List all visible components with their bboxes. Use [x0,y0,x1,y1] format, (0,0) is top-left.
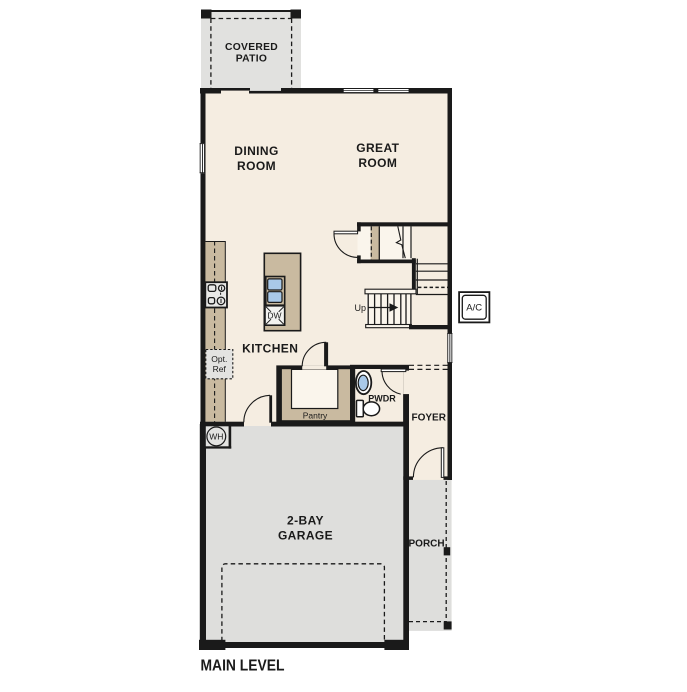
svg-text:FOYER: FOYER [412,413,447,424]
svg-text:COVERED: COVERED [225,42,278,53]
svg-text:PWDR: PWDR [368,393,396,403]
svg-text:Opt.: Opt. [211,354,227,364]
svg-text:ROOM: ROOM [358,156,397,170]
svg-text:PORCH: PORCH [409,539,445,550]
svg-text:Pantry: Pantry [303,410,328,420]
svg-text:Ref: Ref [213,364,227,374]
svg-text:GREAT: GREAT [356,141,399,155]
svg-text:DINING: DINING [234,144,278,158]
svg-text:2-BAY: 2-BAY [287,514,324,528]
svg-text:MAIN LEVEL: MAIN LEVEL [201,658,285,675]
svg-text:PATIO: PATIO [236,54,267,65]
svg-text:KITCHEN: KITCHEN [242,342,298,356]
svg-text:ROOM: ROOM [237,159,276,173]
svg-text:GARAGE: GARAGE [278,529,333,543]
svg-text:Up: Up [355,303,367,313]
svg-text:DW: DW [267,311,281,321]
svg-text:WH: WH [209,432,223,442]
svg-text:A/C: A/C [466,303,482,314]
